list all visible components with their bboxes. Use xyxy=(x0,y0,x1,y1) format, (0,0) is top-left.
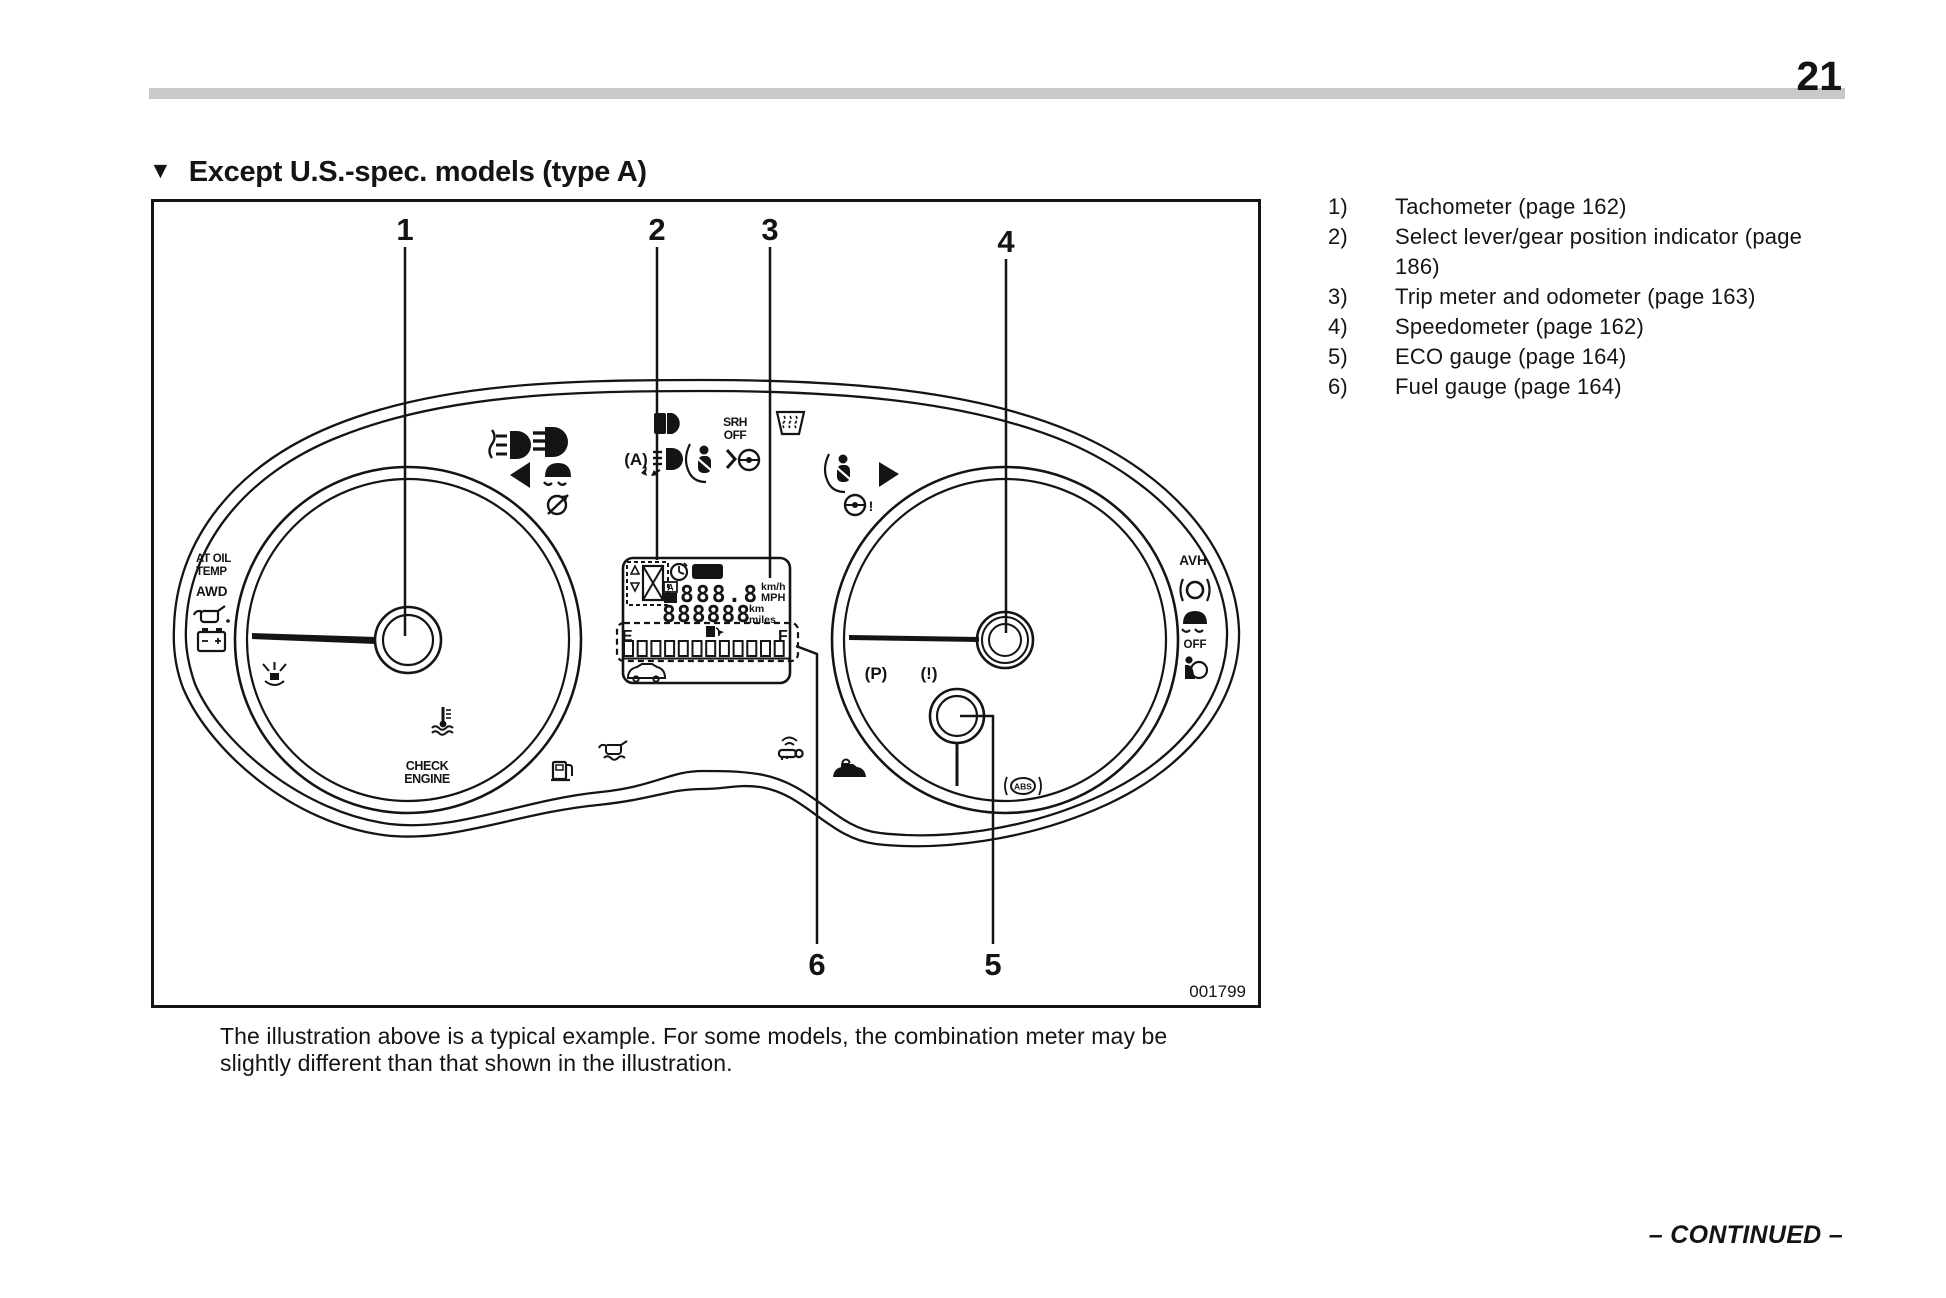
legend-item-5: 5) ECO gauge (page 164) xyxy=(1328,342,1946,372)
callout-6: 6 xyxy=(808,947,825,982)
manual-page: 21 ▼ Except U.S.-spec. models (type A) xyxy=(0,0,1946,1298)
svg-text:SET: SET xyxy=(696,567,718,579)
gear-position-indicator xyxy=(627,562,668,605)
legend-text: Select lever/gear position indicator (pa… xyxy=(1395,224,1802,249)
svg-text:!: ! xyxy=(869,498,874,514)
fuel-segments xyxy=(624,641,784,656)
callout-5: 5 xyxy=(984,947,1001,982)
check-label: CHECK xyxy=(406,759,449,773)
awd-label: AWD xyxy=(196,584,228,599)
caption-line-2: slightly different than that shown in th… xyxy=(220,1050,1167,1077)
avh-label: AVH xyxy=(1179,553,1207,568)
figure-code: 001799 xyxy=(1189,982,1246,1001)
temp-label: TEMP xyxy=(196,566,227,578)
fuel-gauge: E F xyxy=(617,623,798,661)
figure-frame: SET A B 888.8 km/h MPH 888888 km miles xyxy=(151,199,1261,1008)
seat-belt-icon xyxy=(686,444,712,482)
legend: 1) Tachometer (page 162) 2) Select lever… xyxy=(1328,192,1946,402)
eco-car-icon xyxy=(628,664,665,682)
svg-text:OFF: OFF xyxy=(724,428,747,442)
set-badge: SET xyxy=(692,564,723,579)
callout-3: 3 xyxy=(761,212,778,247)
engine-label: ENGINE xyxy=(404,772,450,786)
airbag-icon xyxy=(1185,656,1207,679)
abs-icon: ABS xyxy=(1005,777,1041,795)
turn-signal-left-icon xyxy=(510,462,530,488)
legend-item-3: 3) Trip meter and odometer (page 163) xyxy=(1328,282,1946,312)
combination-meter-illustration: SET A B 888.8 km/h MPH 888888 km miles xyxy=(154,202,1258,1005)
oil-pressure-icon xyxy=(194,606,230,623)
svg-text:ABS: ABS xyxy=(1014,782,1032,792)
speedometer-needle xyxy=(849,635,979,642)
svg-text:!: ! xyxy=(658,418,662,433)
callout-2: 2 xyxy=(648,212,665,247)
shift-down-icon xyxy=(631,583,639,591)
clock-icon xyxy=(671,563,687,580)
legend-text: Speedometer (page 162) xyxy=(1395,314,1644,339)
legend-num: 1) xyxy=(1328,192,1395,222)
bottom-bridge-indicators xyxy=(551,738,866,781)
legend-item-4: 4) Speedometer (page 162) xyxy=(1328,312,1946,342)
brake-warning-icon: (!) xyxy=(921,664,938,683)
legend-text: Fuel gauge (page 164) xyxy=(1395,374,1622,399)
legend-text: Trip meter and odometer (page 163) xyxy=(1395,284,1756,309)
svg-text:(A): (A) xyxy=(624,450,648,469)
figure-caption: The illustration above is a typical exam… xyxy=(220,1023,1167,1076)
vehicle-security-icon xyxy=(833,760,866,777)
legend-num: 2) xyxy=(1328,222,1395,282)
washer-fluid-icon xyxy=(263,662,286,685)
page-number: 21 xyxy=(1796,56,1842,97)
seat-belt-right-icon xyxy=(825,454,851,492)
brake-hold-icon xyxy=(1181,579,1210,601)
fog-light-icon xyxy=(490,430,532,459)
section-title: Except U.S.-spec. models (type A) xyxy=(189,156,647,188)
legend-item-1: 1) Tachometer (page 162) xyxy=(1328,192,1946,222)
callout-4: 4 xyxy=(997,224,1015,259)
callout-1: 1 xyxy=(396,212,413,247)
vdc-icon xyxy=(544,463,571,485)
parking-brake-icon: (P) xyxy=(865,664,888,683)
battery-icon xyxy=(198,628,225,651)
svg-text:OFF: OFF xyxy=(1184,639,1207,651)
auto-start-stop-icon: (A) xyxy=(624,450,648,476)
legend-item-6: 6) Fuel gauge (page 164) xyxy=(1328,372,1946,402)
cruise-control-icon xyxy=(548,495,568,514)
svg-text:SRH: SRH xyxy=(723,415,747,429)
turn-signal-right-icon xyxy=(879,462,899,487)
legend-num: 5) xyxy=(1328,342,1395,372)
legend-item-2: 2) Select lever/gear position indicator … xyxy=(1328,222,1946,282)
left-wing-indicators: AT OIL TEMP AWD xyxy=(194,553,453,786)
svg-text:A: A xyxy=(667,583,674,593)
tachometer-needle xyxy=(252,633,376,644)
section-marker-icon: ▼ xyxy=(149,156,172,185)
svg-text:MPH: MPH xyxy=(761,592,786,604)
svg-text:miles: miles xyxy=(749,614,776,626)
coolant-temp-icon xyxy=(432,707,453,735)
eco-gauge-dial xyxy=(930,689,984,786)
telltale-icons-top: (A) ! xyxy=(490,412,805,514)
section-heading: ▼ Except U.S.-spec. models (type A) xyxy=(149,156,647,188)
continued-label: – CONTINUED – xyxy=(1649,1221,1843,1250)
header-rule xyxy=(149,88,1845,99)
srh-off-label: SRH OFF xyxy=(723,415,747,442)
right-wing-indicators: AVH OFF xyxy=(1179,553,1209,679)
legend-text-wrap: 186) xyxy=(1395,252,1946,282)
caption-line-1: The illustration above is a typical exam… xyxy=(220,1023,1167,1050)
at-oil-label: AT OIL xyxy=(196,553,231,565)
legend-num: 4) xyxy=(1328,312,1395,342)
legend-text: Tachometer (page 162) xyxy=(1395,194,1627,219)
vdc-off-icon: OFF xyxy=(1182,611,1207,651)
immobilizer-icon xyxy=(779,738,803,761)
shift-up-icon xyxy=(631,566,639,574)
steering-warning-icon: ! xyxy=(845,495,873,515)
legend-num: 6) xyxy=(1328,372,1395,402)
legend-text: ECO gauge (page 164) xyxy=(1395,344,1627,369)
power-steering-icon xyxy=(727,450,759,470)
defroster-icon xyxy=(777,412,804,434)
low-fuel-icon xyxy=(551,762,572,780)
high-beam-icon xyxy=(533,427,568,457)
legend-num: 3) xyxy=(1328,282,1395,312)
oil-temp-icon xyxy=(599,741,627,760)
